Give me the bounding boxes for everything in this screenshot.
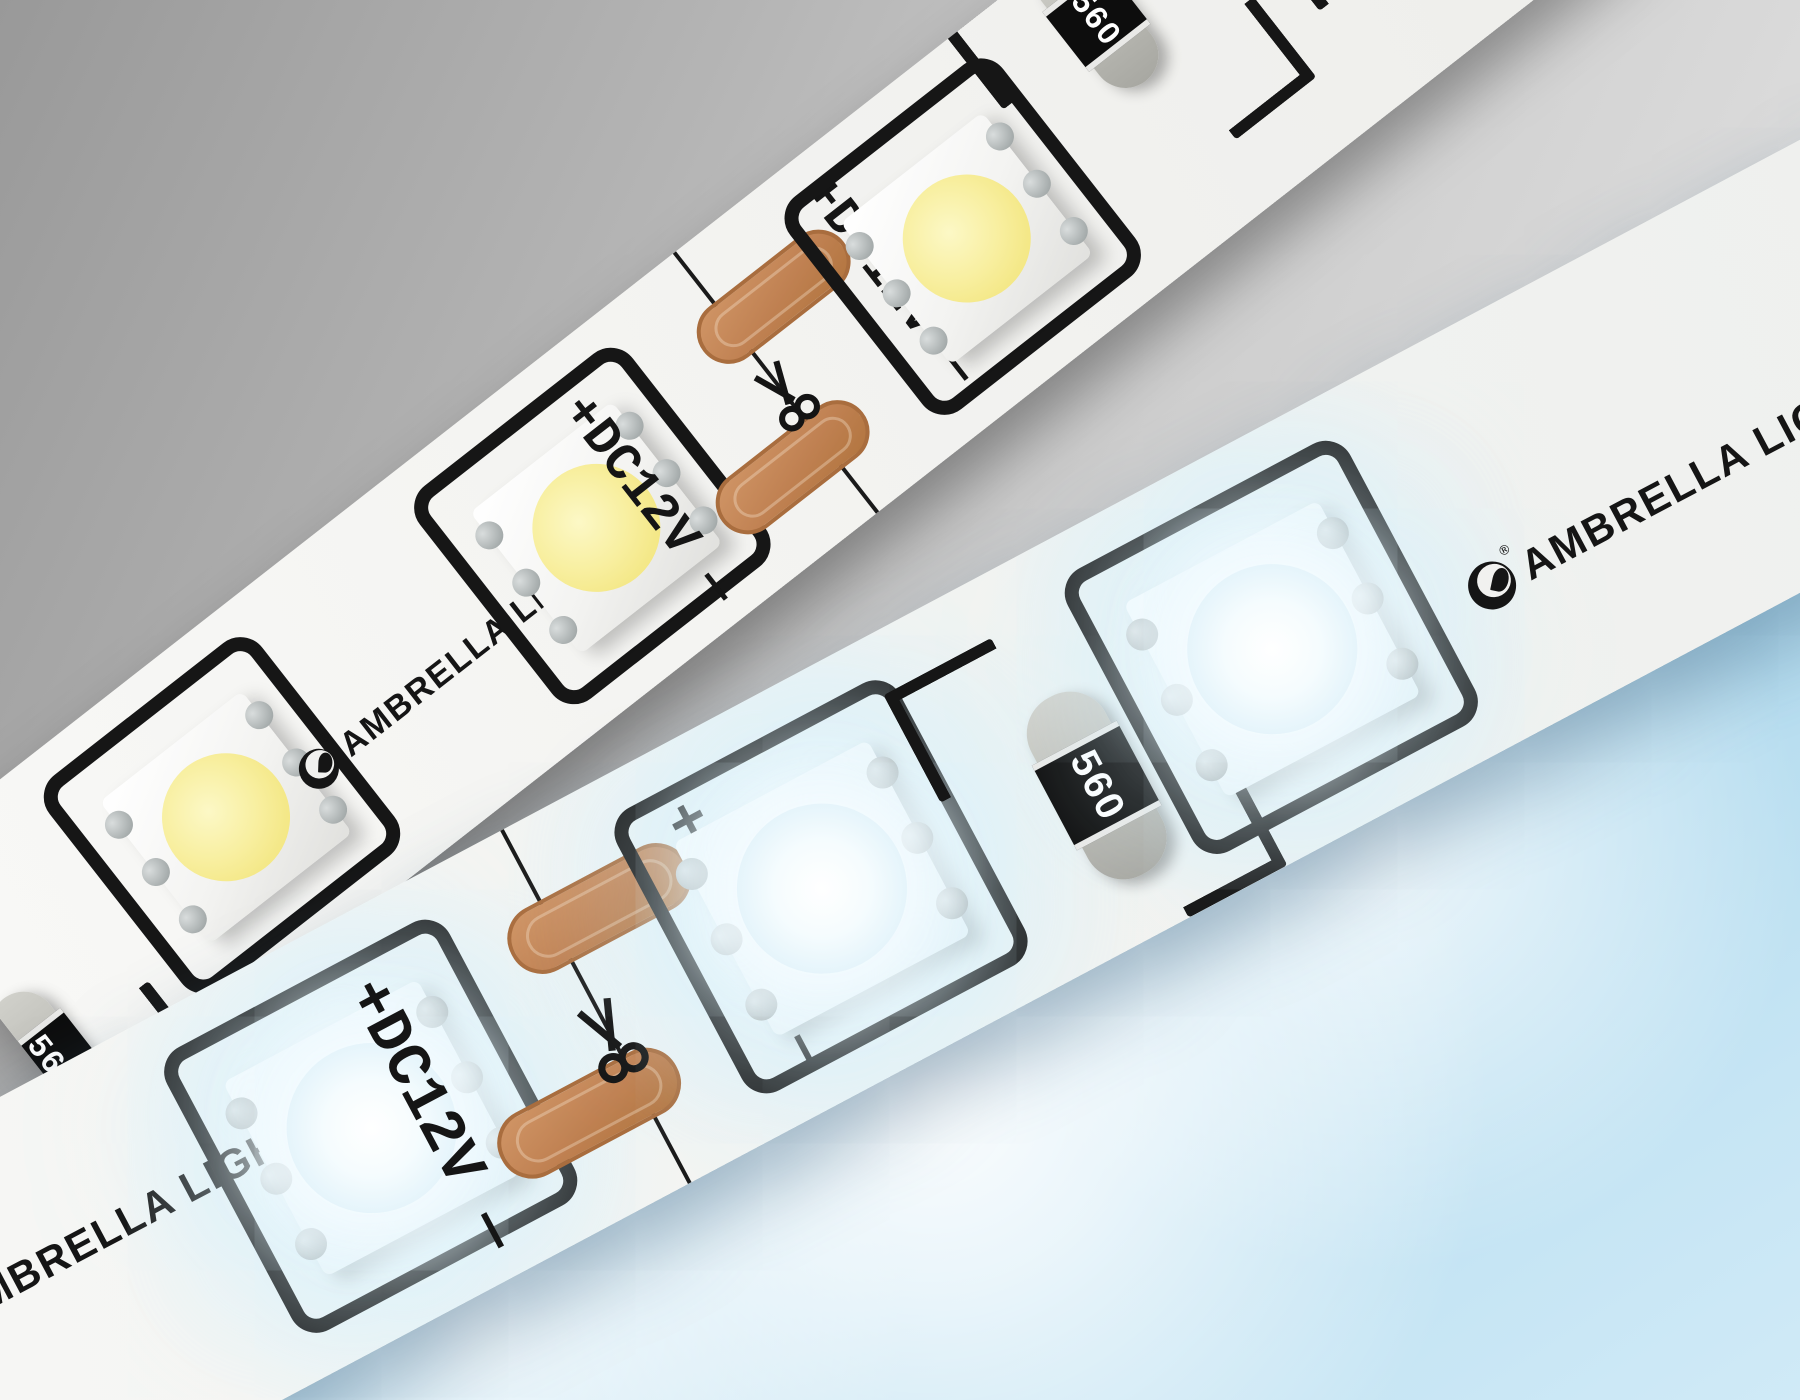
brand-logo-icon: ® [1460,553,1525,618]
silkscreen-bracket [1173,0,1316,140]
resistor-value: 560 [1060,743,1134,828]
brand-logo-drop [318,752,332,772]
brand: ® AMBRELLA LIGHT [1460,360,1800,618]
led-dome [707,774,937,1004]
brand-text: AMBRELLA LIGHT [1513,360,1800,590]
product-photo-scene: 560 [0,0,1800,1400]
silkscreen-bracket [1251,0,1408,11]
resistor-value: 560 [1064,0,1130,53]
led-warm-3 [773,47,1152,426]
registered-mark: ® [1496,541,1515,560]
led-dome [1157,534,1387,764]
